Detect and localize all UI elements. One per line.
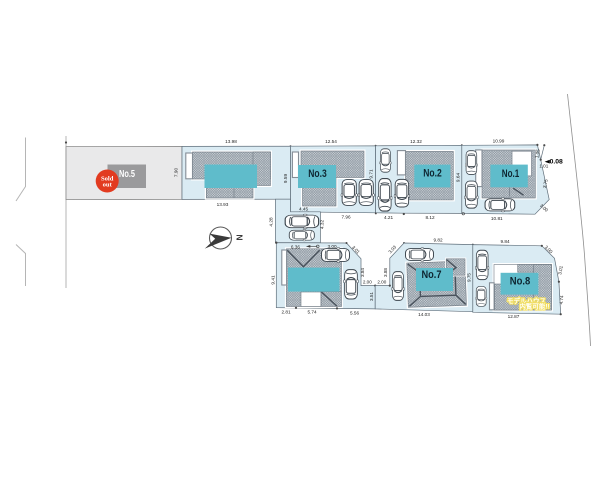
svg-text:3.00: 3.00 bbox=[327, 244, 337, 249]
svg-text:7.90: 7.90 bbox=[173, 168, 178, 178]
svg-text:9.84: 9.84 bbox=[500, 239, 510, 244]
svg-text:2.81: 2.81 bbox=[281, 310, 291, 315]
svg-text:4.32: 4.32 bbox=[319, 220, 324, 230]
svg-text:4.21: 4.21 bbox=[384, 215, 394, 220]
svg-text:out: out bbox=[103, 182, 113, 189]
svg-text:13.98: 13.98 bbox=[225, 139, 237, 144]
svg-text:9.41: 9.41 bbox=[271, 275, 276, 285]
svg-text:No.2: No.2 bbox=[423, 167, 442, 179]
svg-text:10.99: 10.99 bbox=[493, 139, 505, 144]
svg-text:0.08: 0.08 bbox=[550, 159, 563, 166]
svg-text:3.84: 3.84 bbox=[360, 268, 365, 277]
svg-text:No.5: No.5 bbox=[119, 168, 135, 180]
svg-text:No.1: No.1 bbox=[502, 168, 520, 180]
svg-text:2.00: 2.00 bbox=[377, 280, 386, 285]
svg-text:N: N bbox=[235, 234, 245, 240]
svg-text:2.00: 2.00 bbox=[363, 280, 372, 285]
svg-text:No.3: No.3 bbox=[308, 168, 327, 180]
svg-text:6.36: 6.36 bbox=[291, 244, 301, 249]
svg-text:5.56: 5.56 bbox=[350, 311, 360, 316]
svg-text:4.28: 4.28 bbox=[269, 217, 274, 227]
svg-text:3.51: 3.51 bbox=[369, 292, 374, 301]
svg-text:8.12: 8.12 bbox=[425, 215, 435, 220]
svg-text:7.96: 7.96 bbox=[341, 215, 351, 220]
svg-text:13.93: 13.93 bbox=[217, 202, 229, 207]
svg-text:9.59: 9.59 bbox=[283, 174, 288, 184]
svg-text:4.45: 4.45 bbox=[299, 206, 309, 211]
svg-text:14.03: 14.03 bbox=[418, 312, 430, 317]
svg-text:12.87: 12.87 bbox=[508, 314, 520, 319]
svg-text:No.7: No.7 bbox=[422, 269, 442, 281]
svg-text:内覧可能!!: 内覧可能!! bbox=[519, 302, 549, 311]
svg-text:12.32: 12.32 bbox=[410, 139, 422, 144]
svg-text:9.71: 9.71 bbox=[368, 169, 373, 179]
svg-text:12.54: 12.54 bbox=[325, 139, 337, 144]
svg-text:3.88: 3.88 bbox=[383, 268, 388, 277]
svg-text:No.8: No.8 bbox=[510, 276, 531, 288]
svg-text:9.75: 9.75 bbox=[466, 273, 471, 282]
svg-text:9.64: 9.64 bbox=[456, 173, 461, 183]
svg-text:4.74: 4.74 bbox=[559, 295, 565, 305]
svg-text:5.74: 5.74 bbox=[307, 310, 317, 315]
svg-text:10.81: 10.81 bbox=[491, 216, 503, 221]
svg-text:1.01: 1.01 bbox=[539, 163, 548, 168]
svg-text:9.82: 9.82 bbox=[433, 238, 443, 243]
